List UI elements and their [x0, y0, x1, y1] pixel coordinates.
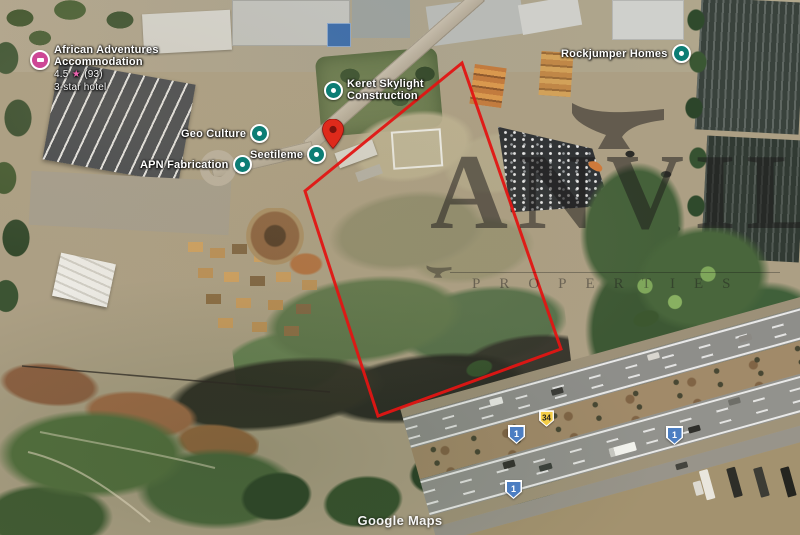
poi-label: Construction	[347, 90, 418, 102]
map-attribution: Google Maps	[0, 513, 800, 528]
poi-label: African Adventures	[54, 44, 159, 56]
rating-value: 4.5	[54, 69, 69, 80]
poi-african-adventures[interactable]: African Adventures Accommodation 4.5 ★ (…	[30, 44, 159, 94]
poi-pin-icon	[324, 81, 343, 100]
greenhouses	[695, 0, 800, 135]
car	[688, 425, 701, 434]
route-number: 1	[507, 482, 521, 498]
satellite-map[interactable]: African Adventures Accommodation 4.5 ★ (…	[0, 0, 800, 535]
poi-rockjumper-homes[interactable]: Rockjumper Homes	[561, 44, 691, 63]
route-shield-n1: 1	[666, 426, 683, 445]
building-roof	[612, 0, 684, 40]
poi-seetileme[interactable]: Seetileme	[250, 145, 326, 164]
poi-label: Accommodation	[54, 56, 143, 68]
poi-apn-fabrication[interactable]: APN Fabrication	[140, 155, 252, 174]
route-shield-r34: 34	[539, 410, 554, 427]
poi-label: Seetileme	[250, 149, 303, 161]
car	[675, 461, 688, 470]
poi-pin-icon	[233, 155, 252, 174]
poi-category: 3-star hotel	[54, 82, 106, 93]
parking-area	[29, 171, 232, 235]
hotel-pin-icon	[30, 50, 50, 70]
poi-keret-skylight[interactable]: Keret Skylight Construction	[324, 78, 424, 102]
poi-geo-culture[interactable]: Geo Culture	[181, 124, 269, 143]
building-roof	[52, 253, 116, 308]
truck	[608, 442, 636, 458]
poi-label: APN Fabrication	[140, 159, 229, 171]
poi-pin-icon	[307, 145, 326, 164]
poi-label: Keret Skylight	[347, 78, 424, 90]
poi-pin-icon	[672, 44, 691, 63]
building-roof	[352, 0, 410, 38]
route-shield-n1: 1	[505, 480, 522, 499]
containers	[469, 64, 506, 108]
poi-pin-icon	[250, 124, 269, 143]
car	[489, 396, 503, 406]
review-count: (93)	[84, 69, 103, 80]
route-number: 34	[540, 411, 552, 425]
poi-label: Geo Culture	[181, 128, 246, 140]
foundation	[391, 128, 444, 169]
lumber-stacks	[188, 242, 203, 252]
poi-label: Rockjumper Homes	[561, 48, 668, 60]
dirt-patch	[282, 246, 330, 282]
solar-pool	[327, 23, 351, 47]
star-icon: ★	[72, 69, 81, 80]
route-number: 1	[510, 427, 524, 443]
route-shield-n1: 1	[508, 425, 525, 444]
route-number: 1	[668, 428, 682, 444]
